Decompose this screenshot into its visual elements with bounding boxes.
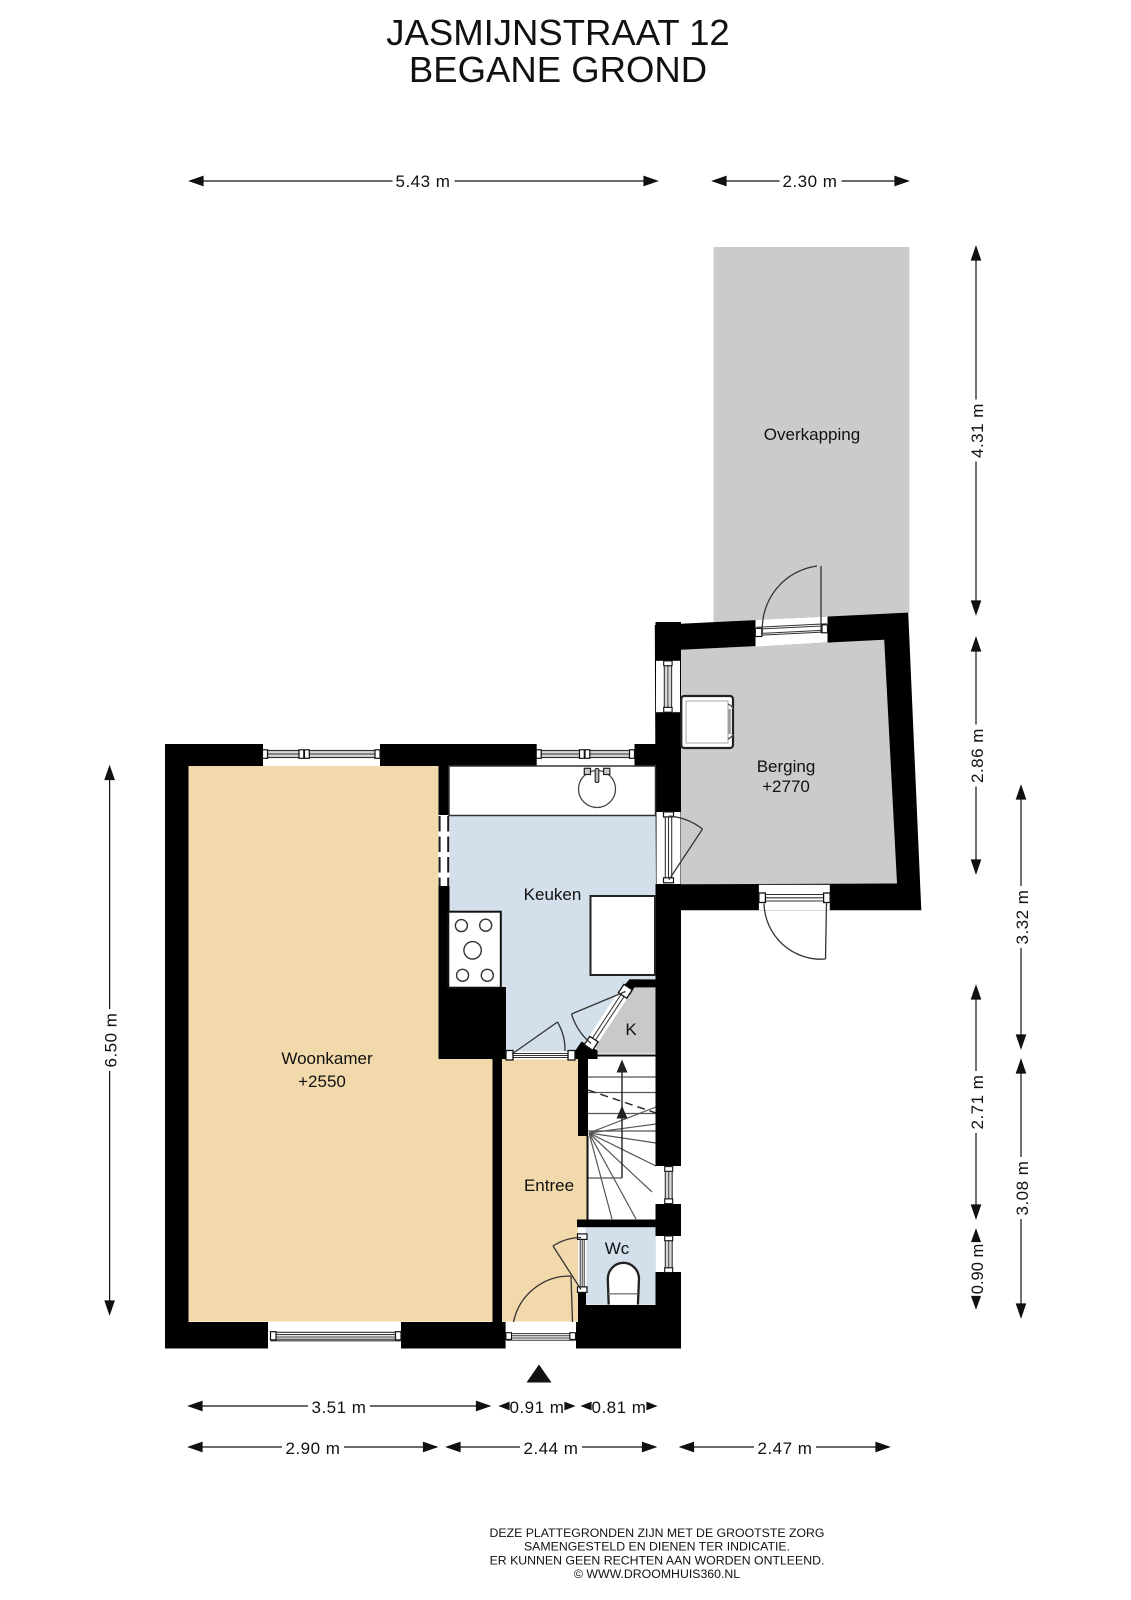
svg-text:2.30 m: 2.30 m [783, 172, 838, 191]
svg-text:ER KUNNEN GEEN RECHTEN AAN WOR: ER KUNNEN GEEN RECHTEN AAN WORDEN ONTLEE… [490, 1553, 825, 1567]
svg-text:3.51 m: 3.51 m [312, 1398, 367, 1417]
svg-text:2.44 m: 2.44 m [524, 1439, 579, 1458]
svg-text:3.32 m: 3.32 m [1013, 890, 1032, 945]
svg-text:4.31 m: 4.31 m [968, 403, 987, 458]
svg-text:© WWW.DROOMHUIS360.NL: © WWW.DROOMHUIS360.NL [574, 1567, 740, 1581]
svg-text:Keuken: Keuken [524, 885, 582, 904]
svg-text:0.81 m: 0.81 m [592, 1398, 647, 1417]
svg-text:Overkapping: Overkapping [764, 425, 860, 444]
svg-text:2.71 m: 2.71 m [968, 1075, 987, 1130]
svg-text:Wc: Wc [605, 1239, 630, 1258]
svg-text:DEZE PLATTEGRONDEN ZIJN MET DE: DEZE PLATTEGRONDEN ZIJN MET DE GROOTSTE … [490, 1526, 825, 1540]
svg-text:SAMENGESTELD EN DIENEN TER IND: SAMENGESTELD EN DIENEN TER INDICATIE. [524, 1540, 790, 1554]
svg-text:Woonkamer: Woonkamer [281, 1049, 373, 1068]
svg-text:2.90 m: 2.90 m [286, 1439, 341, 1458]
svg-text:5.43 m: 5.43 m [396, 172, 451, 191]
svg-text:2.86 m: 2.86 m [968, 728, 987, 783]
svg-text:+2550: +2550 [298, 1072, 346, 1091]
svg-text:+2770: +2770 [762, 777, 810, 796]
svg-text:Berging: Berging [757, 757, 816, 776]
svg-text:3.08 m: 3.08 m [1013, 1161, 1032, 1216]
svg-text:Entree: Entree [524, 1176, 574, 1195]
svg-text:2.47 m: 2.47 m [758, 1439, 813, 1458]
svg-text:K: K [625, 1020, 637, 1039]
svg-text:JASMIJNSTRAAT 12: JASMIJNSTRAAT 12 [386, 12, 729, 53]
svg-text:0.90 m: 0.90 m [969, 1244, 987, 1294]
svg-text:BEGANE GROND: BEGANE GROND [409, 49, 707, 90]
svg-text:6.50 m: 6.50 m [102, 1013, 121, 1068]
svg-text:0.91 m: 0.91 m [510, 1398, 565, 1417]
